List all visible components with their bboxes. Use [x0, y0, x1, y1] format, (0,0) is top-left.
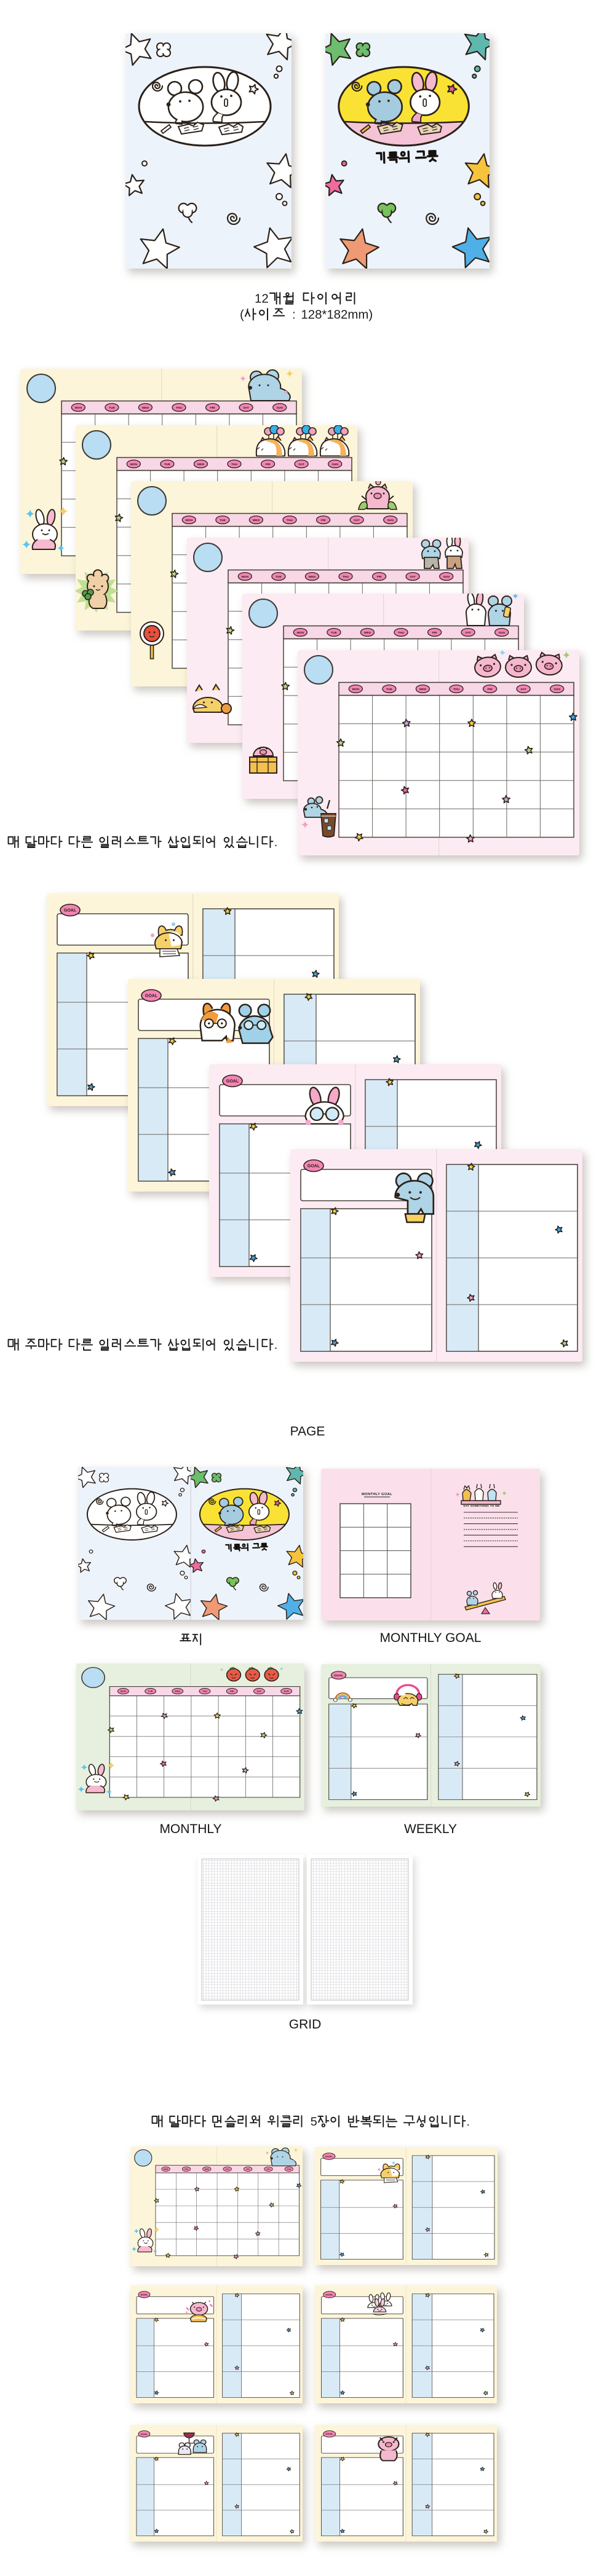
svg-text:SAT: SAT — [243, 406, 248, 410]
svg-text:MON: MON — [186, 519, 193, 522]
svg-text:SUN: SUN — [554, 688, 561, 691]
svg-text:SUN: SUN — [332, 463, 339, 466]
svg-text:GOAL: GOAL — [325, 2155, 333, 2158]
svg-text:THU: THU — [202, 1690, 207, 1693]
svg-text:FRI: FRI — [210, 406, 216, 410]
svg-text:SAT: SAT — [410, 575, 415, 579]
svg-text:FRI: FRI — [247, 2168, 250, 2170]
svg-text:FRI: FRI — [321, 519, 327, 522]
svg-text:MON: MON — [297, 631, 304, 635]
svg-text:MONTHLY GOAL: MONTHLY GOAL — [362, 1493, 392, 1496]
svg-text:SAT: SAT — [465, 631, 470, 635]
svg-text:WED: WED — [364, 631, 371, 635]
svg-text:TUE: TUE — [276, 575, 282, 579]
svg-text:SUN: SUN — [443, 575, 450, 579]
svg-text:SAT: SAT — [267, 2168, 271, 2170]
svg-text:WED: WED — [419, 688, 427, 691]
svg-text:SUN: SUN — [287, 2168, 291, 2170]
svg-text:(: ( — [240, 308, 244, 322]
svg-text:MON: MON — [242, 575, 249, 579]
svg-text:FRI: FRI — [377, 575, 383, 579]
svg-text:MON: MON — [164, 2168, 168, 2170]
svg-text:.: . — [467, 2115, 470, 2129]
svg-text:MON: MON — [130, 463, 138, 466]
svg-text:FRI: FRI — [230, 1690, 234, 1693]
svg-text:WED: WED — [253, 519, 260, 522]
svg-text:SAT: SAT — [520, 688, 526, 691]
svg-text:GOAL: GOAL — [325, 2293, 333, 2296]
svg-text:TUE: TUE — [184, 2168, 188, 2170]
svg-text:TUE: TUE — [109, 406, 116, 410]
svg-text:THU: THU — [453, 688, 460, 691]
svg-text:GOAL: GOAL — [140, 2432, 148, 2435]
svg-text:WED: WED — [205, 2168, 209, 2170]
svg-text:128*182mm): 128*182mm) — [301, 308, 373, 322]
svg-text:GOAL: GOAL — [325, 2433, 333, 2436]
svg-text:THU: THU — [231, 463, 238, 466]
svg-text:THU: THU — [176, 406, 183, 410]
svg-text:GOAL: GOAL — [140, 2293, 148, 2296]
svg-text:TUE: TUE — [386, 688, 393, 691]
svg-text:THU: THU — [343, 575, 349, 579]
svg-text:WED: WED — [142, 406, 149, 410]
svg-text:WED: WED — [197, 463, 205, 466]
svg-text:FRI: FRI — [488, 688, 493, 691]
svg-text:SUN: SUN — [387, 519, 394, 522]
svg-text:GOAL: GOAL — [334, 1674, 343, 1678]
svg-text:GOAL: GOAL — [307, 1164, 320, 1169]
svg-text:SUN: SUN — [284, 1690, 289, 1693]
svg-text:WED: WED — [175, 1690, 181, 1693]
svg-text:.: . — [274, 1338, 278, 1352]
svg-text:5: 5 — [311, 2115, 317, 2129]
svg-text::: : — [292, 308, 296, 322]
svg-text:GOAL: GOAL — [64, 909, 77, 913]
svg-text:SUN: SUN — [499, 631, 506, 635]
svg-text:FRI: FRI — [266, 463, 271, 466]
svg-text:MON: MON — [352, 688, 360, 691]
svg-text:TUE: TUE — [331, 631, 338, 635]
svg-text:GOAL: GOAL — [226, 1080, 239, 1084]
svg-text:THU: THU — [226, 2168, 229, 2170]
svg-text:SUN: SUN — [277, 406, 284, 410]
svg-text:SAT: SAT — [257, 1690, 262, 1693]
svg-text:FRI: FRI — [432, 631, 438, 635]
svg-text:WED: WED — [309, 575, 316, 579]
svg-text:MON: MON — [121, 1690, 127, 1693]
svg-text:SAT: SAT — [354, 519, 359, 522]
svg-text:TUE: TUE — [148, 1690, 153, 1693]
svg-text:.: . — [274, 836, 278, 849]
svg-text:SAT: SAT — [298, 463, 304, 466]
svg-text:THU: THU — [398, 631, 405, 635]
svg-text:GOAL: GOAL — [145, 994, 158, 999]
svg-text:TUE: TUE — [164, 463, 171, 466]
svg-text:MON: MON — [75, 406, 82, 410]
svg-text:SAY SOMETHING TO ME: SAY SOMETHING TO ME — [463, 1504, 499, 1507]
svg-text:12: 12 — [255, 293, 269, 306]
svg-text:THU: THU — [287, 519, 293, 522]
svg-text:TUE: TUE — [220, 519, 226, 522]
